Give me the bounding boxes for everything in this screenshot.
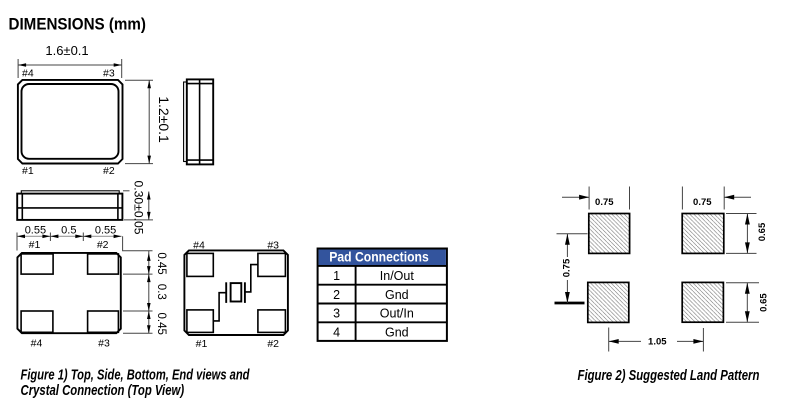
svg-text:In/Out: In/Out — [380, 269, 415, 283]
svg-text:#2: #2 — [267, 338, 279, 350]
svg-text:0.5: 0.5 — [61, 225, 76, 237]
svg-text:1.2±0.1: 1.2±0.1 — [156, 96, 172, 143]
svg-text:Out/In: Out/In — [380, 307, 414, 321]
svg-text:DIMENSIONS (mm): DIMENSIONS (mm) — [9, 14, 147, 33]
svg-text:Gnd: Gnd — [385, 288, 409, 302]
svg-text:0.30±0.05: 0.30±0.05 — [131, 180, 145, 234]
svg-text:#1: #1 — [29, 239, 41, 251]
svg-text:1.05: 1.05 — [648, 337, 667, 348]
svg-text:#3: #3 — [103, 68, 115, 80]
svg-text:0.75: 0.75 — [693, 197, 712, 208]
svg-text:#2: #2 — [97, 239, 109, 251]
svg-text:Pad Connections: Pad Connections — [329, 249, 429, 264]
svg-text:Figure 2) Suggested Land Patte: Figure 2) Suggested Land Pattern — [578, 367, 760, 384]
svg-text:3: 3 — [333, 307, 340, 321]
svg-text:#4: #4 — [22, 68, 34, 80]
svg-text:0.55: 0.55 — [95, 225, 116, 237]
svg-text:#4: #4 — [31, 338, 43, 350]
svg-text:0.75: 0.75 — [595, 197, 614, 208]
svg-text:0.3: 0.3 — [155, 284, 167, 300]
svg-text:#2: #2 — [103, 165, 115, 177]
svg-text:4: 4 — [333, 325, 340, 339]
svg-text:1.6±0.1: 1.6±0.1 — [45, 43, 88, 58]
svg-text:0.75: 0.75 — [562, 258, 573, 277]
svg-text:2: 2 — [333, 288, 340, 302]
svg-text:0.45: 0.45 — [155, 252, 167, 274]
svg-text:0.45: 0.45 — [155, 313, 167, 335]
svg-text:#1: #1 — [196, 338, 208, 350]
svg-text:0.65: 0.65 — [758, 293, 769, 312]
svg-text:1: 1 — [333, 269, 340, 283]
svg-text:Crystal Connection (Top View): Crystal Connection (Top View) — [21, 382, 185, 399]
svg-text:0.65: 0.65 — [757, 222, 768, 241]
svg-text:#1: #1 — [22, 165, 34, 177]
svg-text:#3: #3 — [98, 338, 110, 350]
svg-text:Gnd: Gnd — [385, 325, 409, 339]
